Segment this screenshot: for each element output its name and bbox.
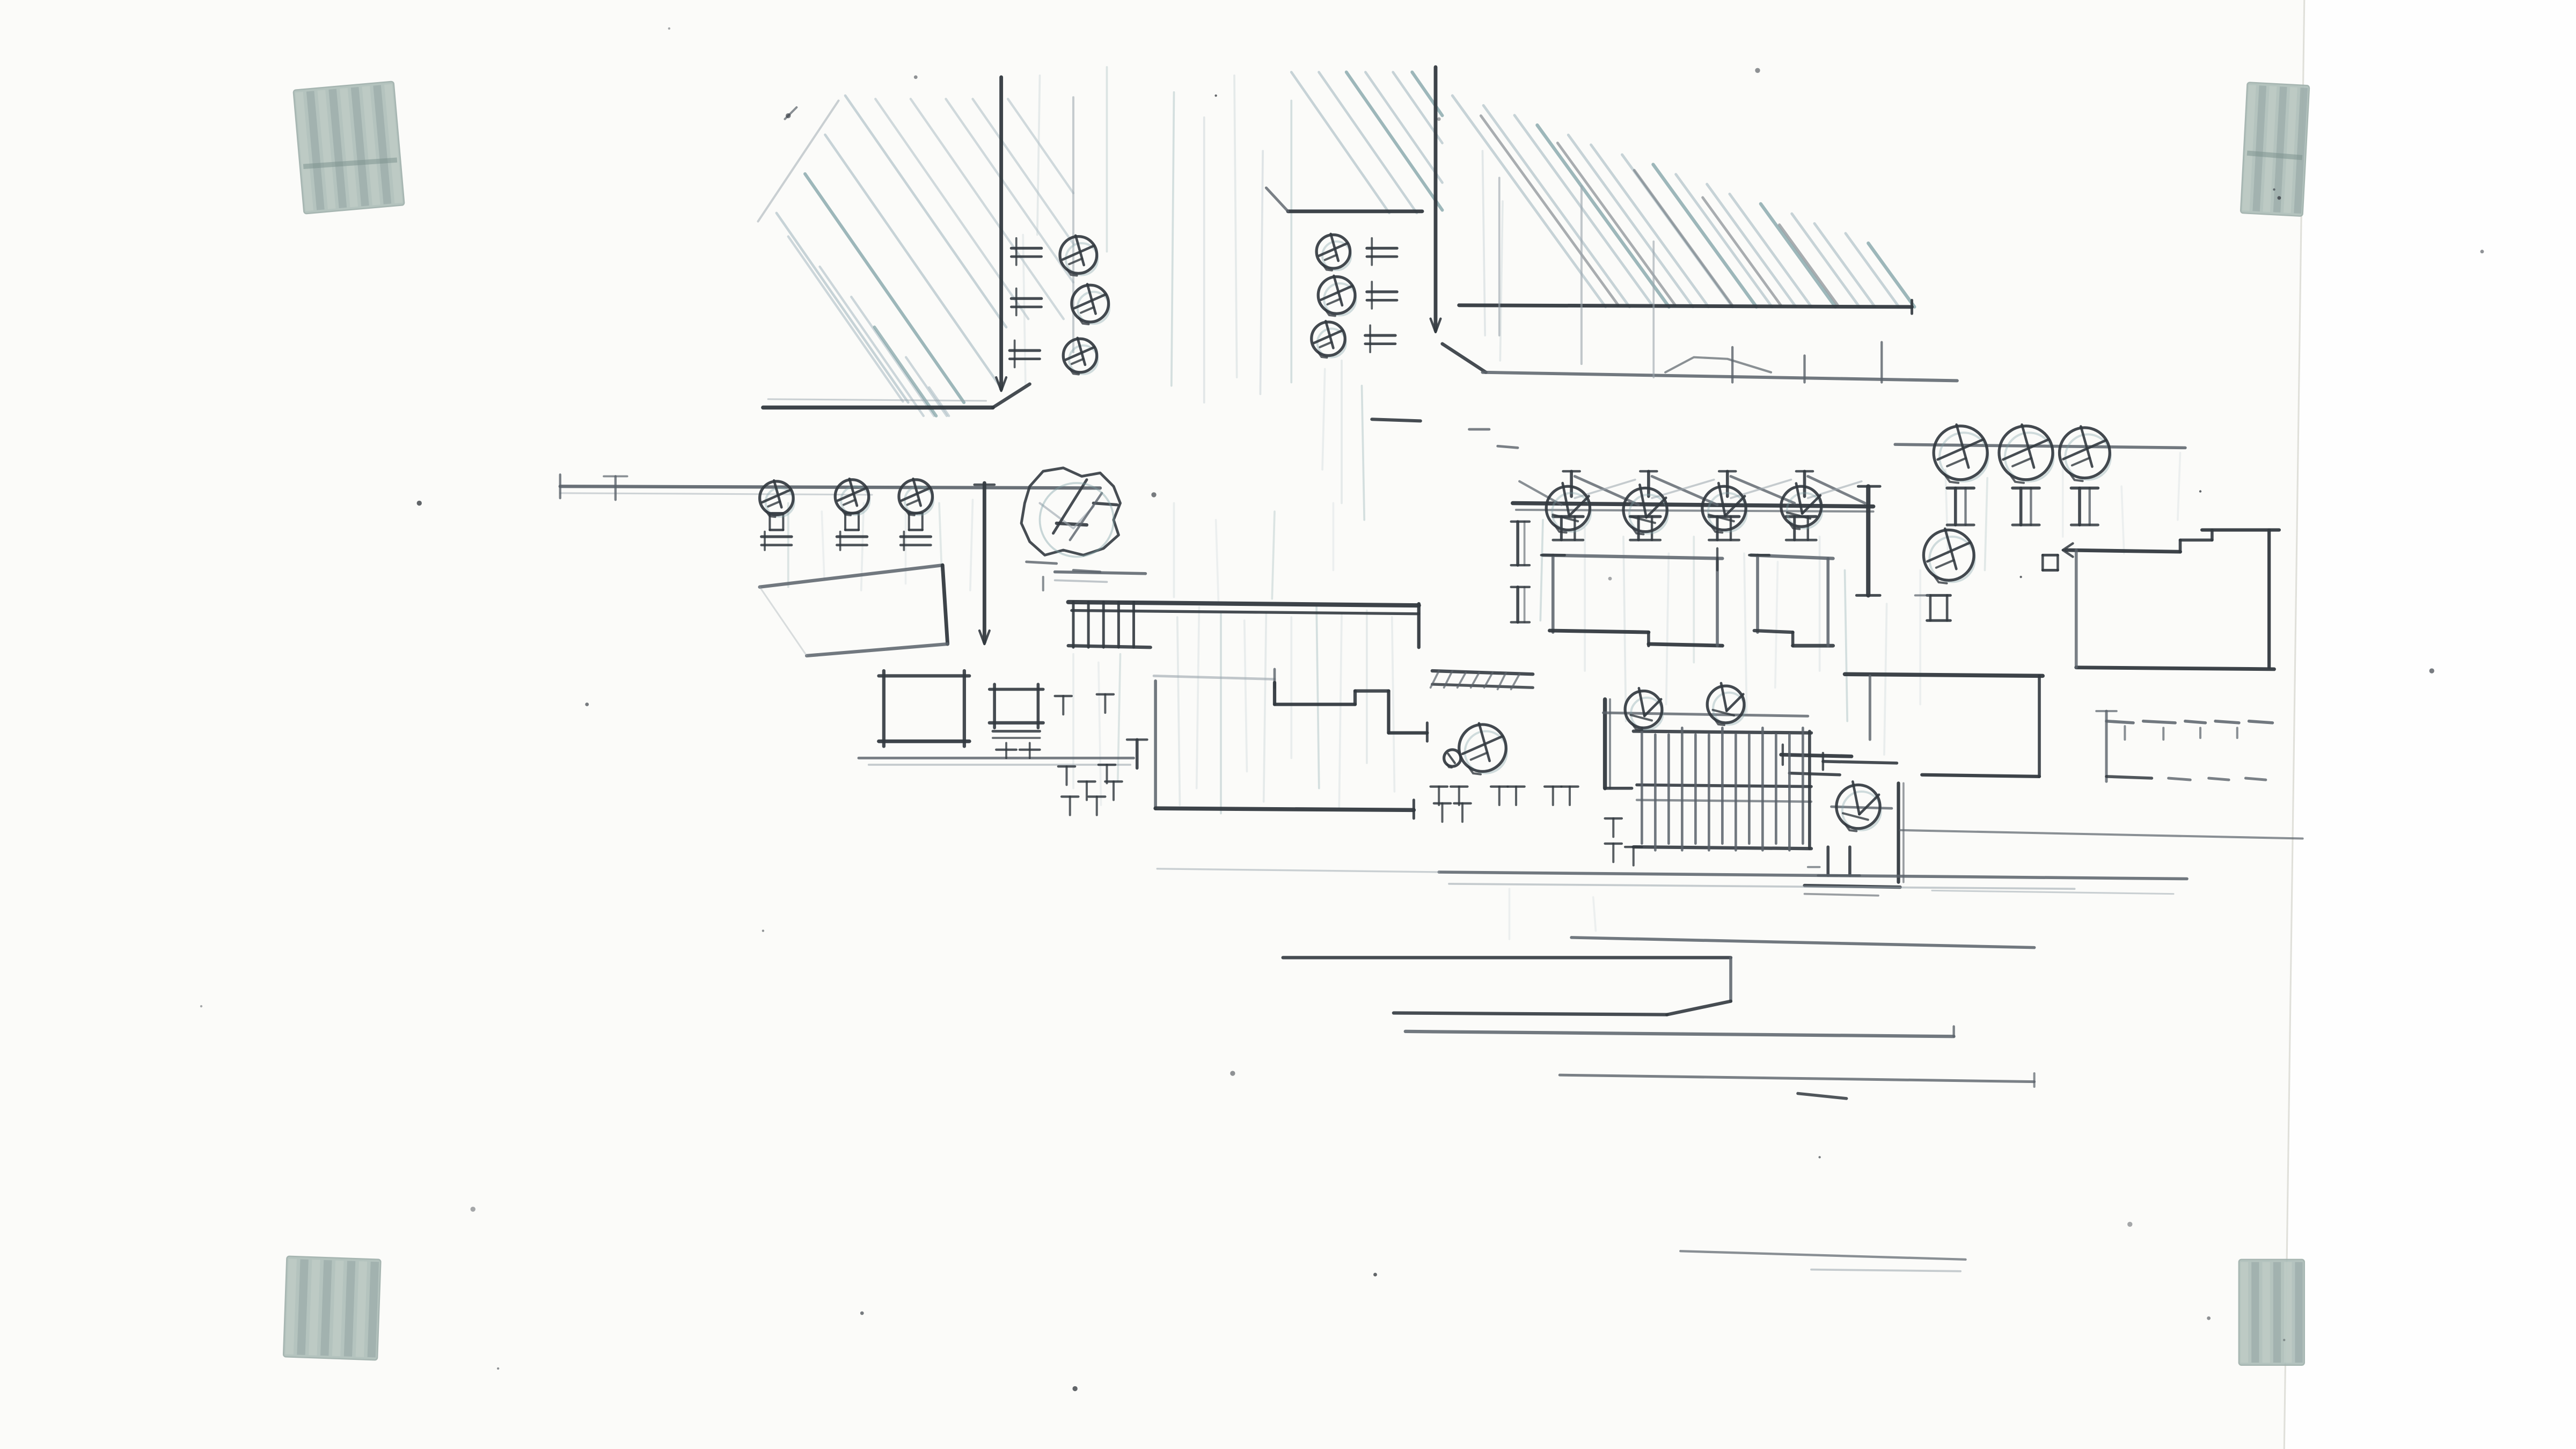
dust-speck [497, 1367, 499, 1370]
dust-speck [2207, 1316, 2211, 1320]
dash-segment [2245, 778, 2266, 780]
paper-sheet [0, 0, 2304, 1449]
dust-speck [762, 930, 764, 932]
dashed-row-2 [2169, 778, 2266, 780]
dash-segment [2106, 721, 2133, 723]
pencil-stroke [1498, 446, 1518, 448]
pencil-stroke [2076, 668, 2274, 669]
tape-fabric-stripe [348, 1261, 351, 1357]
dust-speck [668, 27, 670, 30]
dust-speck [914, 75, 918, 79]
dust-speck [1755, 68, 1760, 73]
pencil-stroke [560, 486, 1100, 488]
dust-speck [585, 702, 589, 706]
pencil-stroke [1069, 646, 1151, 647]
dust-speck [2019, 576, 2022, 578]
dust-speck [1437, 117, 1441, 121]
dust-speck [2283, 1339, 2285, 1341]
tape-bottom-right [2239, 1260, 2304, 1365]
pencil-stroke [1637, 785, 1811, 787]
pencil-stroke [1789, 773, 1840, 775]
pencil-stroke [1372, 419, 1421, 421]
tape-top-right [2241, 82, 2309, 216]
pencil-stroke [2066, 550, 2180, 552]
pencil-stroke [1781, 755, 1851, 756]
dash-segment [2169, 778, 2191, 780]
pencil-stroke [1754, 631, 1793, 632]
paper [0, 0, 2576, 1449]
dust-speck [1608, 577, 1612, 581]
tape-fabric-stripe [301, 1260, 304, 1355]
pencil-stroke [1922, 775, 2039, 777]
dust-speck [1151, 492, 1156, 497]
dust-speck [2480, 250, 2484, 253]
dust-speck [1230, 1071, 1235, 1075]
dust-speck [1373, 1273, 1377, 1277]
pencil-stroke [1634, 847, 1811, 848]
tape-body [2239, 1260, 2304, 1365]
dust-speck [417, 501, 422, 506]
tape-fabric-stripe [360, 1261, 363, 1357]
pencil-stroke [1550, 631, 1649, 632]
dust-speck [786, 113, 791, 118]
dust-speck [1214, 94, 1217, 97]
dust-speck [200, 1005, 202, 1007]
pencil-stroke [2106, 777, 2151, 778]
dust-speck [1072, 1386, 1077, 1391]
tape-fabric-stripe [371, 1262, 375, 1357]
pencil-stroke [1832, 807, 1892, 808]
pencil-stroke [1394, 1013, 1667, 1015]
tape-top-left [294, 82, 405, 214]
pencil-stroke [1094, 503, 1117, 505]
tape-bottom-left [283, 1256, 380, 1360]
dust-speck [2273, 188, 2275, 191]
dust-speck [2127, 1222, 2132, 1227]
pencil-stroke [1845, 674, 2043, 676]
tape-fabric-stripe [325, 1260, 328, 1356]
dash-segment [2185, 721, 2206, 723]
dust-speck [471, 1206, 475, 1211]
dust-speck [2277, 196, 2281, 200]
pencil-stroke [1027, 562, 1057, 563]
dust-speck [1818, 1156, 1820, 1158]
scanned-sketch-page [0, 0, 2576, 1449]
dust-speck [2429, 668, 2434, 673]
tape-fabric-stripe [289, 1259, 292, 1355]
tape-fabric-stripe [336, 1261, 340, 1356]
dash-segment [2143, 721, 2175, 723]
pencil-stroke [1637, 800, 1811, 802]
dash-segment [2249, 721, 2273, 723]
pencil-stroke [1459, 305, 1912, 307]
pencil-stroke [1155, 808, 1414, 810]
dash-segment [2209, 778, 2229, 780]
tape-fabric-stripe [313, 1260, 316, 1355]
pencil-stroke [1055, 572, 1146, 574]
pencil-stroke [1649, 644, 1723, 646]
site-plan-sketch-svg [0, 0, 2576, 1449]
dust-speck [860, 1311, 864, 1315]
pencil-stroke [1823, 762, 1897, 763]
dash-segment [2215, 721, 2239, 723]
dust-speck [2199, 490, 2201, 492]
